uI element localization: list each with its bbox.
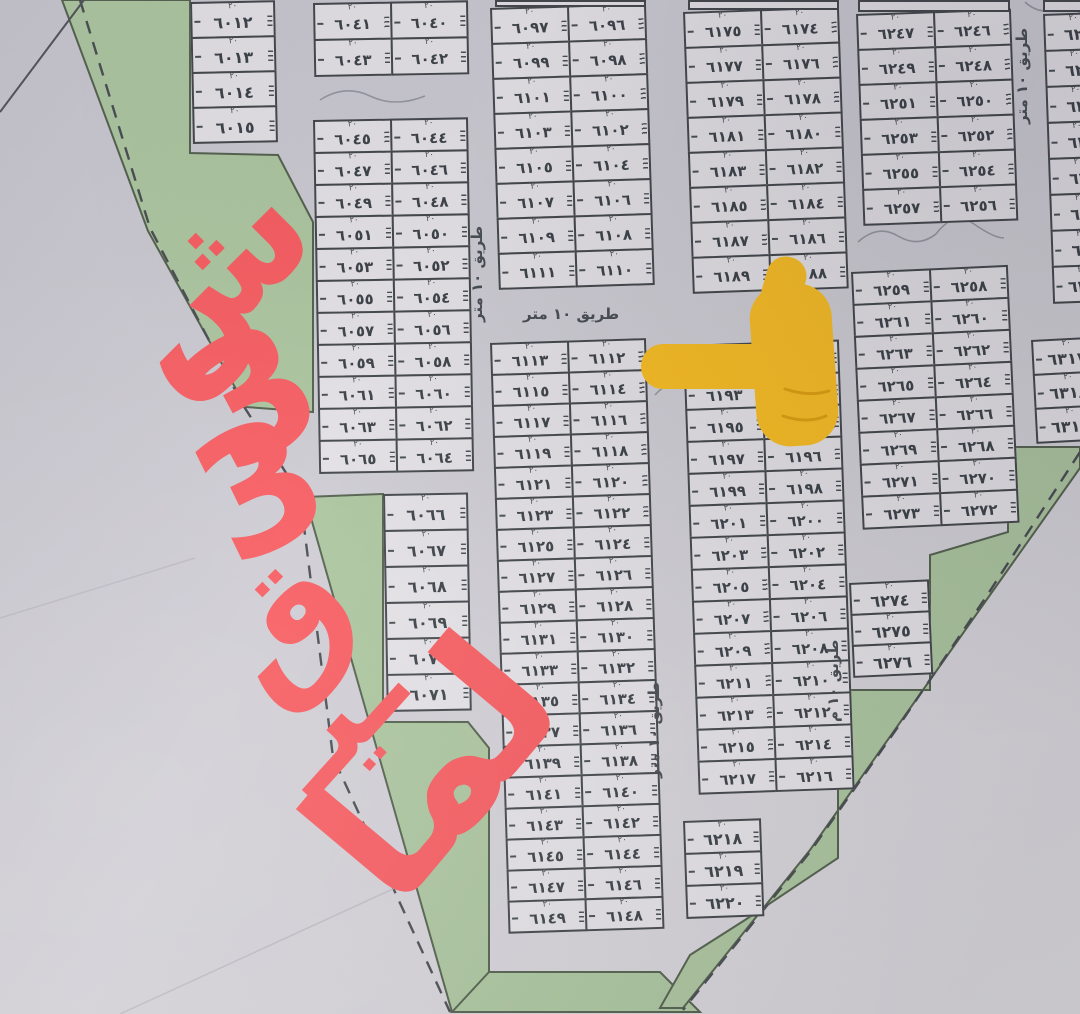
plot-row: ٢٠٦٠٦١٢٠٦٠٦٠ [317,373,473,410]
plot-cell: ٢٠٦٢٥٤ [937,149,1017,189]
plot-cell: ٢٠٦٣١ [1052,264,1080,304]
plot-number: ٦١١٨ [591,442,628,461]
plot-dimension-label: ٢٠ [893,83,902,92]
plot-dimension-label: ٢٠ [1076,230,1080,239]
plot-dimension-label: ٢٠ [720,81,729,90]
plot-cell: ٢٠٦١٤٥ [506,836,586,871]
plot-cell: ٢٠٦٢٠٣ [690,534,770,571]
plot-dimension-label: ٢٠ [799,114,808,123]
plot-dimension-label: ٢٠ [726,568,735,577]
plot-dimension-label: ٢٠ [425,38,434,47]
plot-dimension-label: ٢٠ [896,495,906,504]
plot-dimension-label: ٢٠ [605,110,614,119]
plot-row: ٢٠٦٠٤٩٢٠٦٠٤٨ [314,181,470,218]
plot-cell: ٢٠٦٠٦٨ [384,565,470,604]
plot-number: ٦١٤٦ [605,876,642,895]
plot-dimension-label: ٢٠ [968,46,977,55]
plot-dimension-label: ٢٠ [609,557,618,566]
plot-number: ٦٠٦٠ [415,384,452,403]
plot-dimension-label: ٢٠ [610,250,619,259]
plot-dimension-label: ٢٠ [533,590,542,599]
plot-number: ٦٢٠٦ [790,607,827,626]
plot-cell: ٢٠٦٢١٦ [774,755,854,792]
plot-dimension-label: ٢٠ [541,869,550,878]
plot-cell: ٢٠٦١٧٧ [684,44,764,84]
plot-cell: ٢٠٦٠٤٩ [314,183,393,218]
plot-cell: ٢٠٦٠٤٣ [314,38,393,77]
plot-row: ٢٠٦٢٧٦ [852,641,933,678]
plot-number: ٦٣ [1069,169,1080,189]
plot-cell: ٢٠٦١٠٥ [494,145,574,184]
plot-dimension-label: ٢٠ [428,343,437,352]
plot-number: ٦١٨٦ [789,229,826,248]
plot-number: ٦٢٥٨ [950,276,987,296]
plot-dimension-label: ٢٠ [426,215,435,224]
street-label-text: طريق ١٠ متر [645,682,663,778]
plot-dimension-label: ٢٠ [228,2,237,11]
plot-number: ٦٢٧١ [882,472,919,492]
plot-cell: ٢٠٦٠٦٤ [395,437,474,472]
plot-number: ٦٢١٧ [719,769,756,788]
plot-dimension-label: ٢٠ [884,582,894,591]
plot-dimension-label: ٢٠ [350,248,359,257]
plot-cell-partial [495,0,646,7]
plot-number: ٦٢٥٩ [873,280,910,300]
plot-number: ٦٠٤٥ [334,129,371,148]
plot-number: ٦٢٦٢ [953,340,990,360]
plot-cell: ٢٠٦١٠٩ [497,215,577,254]
plot-dimension-label: ٢٠ [888,303,898,312]
plot-cell: ٢٠٦٢٠٧ [692,598,772,635]
plot-number: ٦٠٤٦ [411,160,448,179]
plot-dimension-label: ٢٠ [894,118,903,127]
plot-cell: ٢٠٦٢٠٢ [767,531,847,568]
plot-row: ٢٠٦٣١٨ [1033,370,1080,410]
plot-number: ٦٠٤٨ [412,192,449,211]
plot-number: ٦٠٥٩ [338,353,375,372]
plot-dimension-label: ٢٠ [971,427,981,436]
plot-cell: ٢٠٦١٤٧ [507,867,587,902]
plot-number: ٦٣١ [1068,276,1080,296]
plot-cell: ٢٠٦٢١٨ [683,818,762,855]
plot-number: ٦٠٩٦ [589,16,626,35]
plot-number: ٦٣١٩ [1051,416,1080,437]
plot-dimension-label: ٢٠ [533,252,542,261]
plot-dimension-label: ٢٠ [607,495,616,504]
plot-dimension-label: ٢٠ [725,536,734,545]
plot-number: ٦١٢٧ [518,568,555,587]
plot-cell: ٢٠٦١٨٧ [690,219,770,259]
plot-number: ٦٢٦١ [874,312,911,332]
plot-row: ٢٠٦٣١ [1052,264,1080,304]
plot-number: ٦١٧٩ [707,92,744,111]
pointing-finger-icon [633,256,840,452]
plot-number: ٦٠٦٣ [339,417,376,436]
plot-dimension-label: ٢٠ [886,271,896,280]
plot-cell: ٢٠٦٢٥٥ [861,151,941,191]
plot-dimension-label: ٢٠ [724,504,733,513]
plot-dimension-label: ٢٠ [809,758,818,767]
plot-number: ٦١٤٩ [529,909,566,928]
plot-dimension-label: ٢٠ [425,151,434,160]
plot-dimension-label: ٢٠ [731,728,740,737]
plot-cell: ٢٠٦٢٠٥ [691,566,771,603]
plot-dimension-label: ٢٠ [609,215,618,224]
plot-dimension-label: ٢٠ [426,247,435,256]
plot-row: ٢٠٦٠٥١٢٠٦٠٥٠ [315,213,471,250]
plot-number: ٦١٧٤ [782,19,819,38]
plot-number: ٦١٩٨ [786,479,823,498]
plot-cell: ٢٠٦٢١٤ [773,723,853,760]
plot-dimension-label: ٢٠ [887,644,897,653]
plot-number: ٦٢٧٦ [873,652,913,673]
plot-number: ٦٢٥٤ [959,161,996,180]
plot-number: ٦١٨١ [708,127,745,146]
plot-row: ٢٠٦٢١٩ [684,850,763,887]
plot-number: ٦٣١٨ [1049,382,1080,403]
plot-dimension-label: ٢٠ [727,600,736,609]
plot-number: ٦٠٩٩ [513,53,550,72]
street-label-text: طريق ١٠ متر [1013,28,1031,124]
plot-number: ٦١٠٩ [518,228,555,247]
plot-number: ٦٢٧٣ [883,504,920,524]
plot-dimension-label: ٢٠ [615,743,624,752]
plot-number: ٦٢٥٧ [883,199,920,218]
plot-cell: ٢٠٦١٢١ [494,464,574,499]
plot-dimension-label: ٢٠ [799,470,808,479]
plot-cell: ٢٠٦٢٧٢ [939,489,1020,527]
plot-row: ٢٠٦٠١٢ [190,0,276,39]
plot-row: ٢٠٦٣١٧ [1031,336,1080,376]
plot-row: ٢٠٦٢٧٣٢٠٦٢٧٢ [861,489,1019,530]
plot-number: ٦١٨٢ [786,159,823,178]
plot-number: ٦٢١٥ [718,737,755,756]
plot-cell: ٢٠٦٠٤٧ [314,151,393,186]
plot-cell: ٢٠٦١٢٣ [495,495,575,530]
plot-number: ٦١٣٨ [601,752,638,771]
plot-number: ٦٢٦٨ [958,436,995,456]
plot-cell: ٢٠٦١٨٦ [767,216,847,256]
plot-number: ٦١٠٦ [594,191,631,210]
plot-number: ٦٢١٤ [795,735,832,754]
plot-number: ٦٢٠٢ [788,543,825,562]
plot-dimension-label: ٢٠ [353,408,362,417]
plot-row: ٢٠٦٠٦٨ [384,565,470,604]
plot-dimension-label: ٢٠ [525,8,534,17]
plot-row: ٢٠٦٢٢٠ [685,882,764,919]
plot-block-I: ٢٠٦٢٥٩٢٠٦٢٥٨٢٠٦٢٦١٢٠٦٢٦٠٢٠٦٢٦٣٢٠٦٢٦٢٢٠٦٢… [851,265,1020,530]
plot-cell: ٢٠٦٠١٢ [190,0,276,39]
plot-dimension-label: ٢٠ [1072,122,1080,131]
plot-cell: ٢٠٦٢٤٨ [934,44,1014,84]
plot-number: ٦١٢٢ [593,504,630,523]
plot-dimension-label: ٢٠ [525,343,534,352]
plot-cell: ٢٠٦٣ [1048,156,1080,196]
plot-cell: ٢٠٦٠٥٦ [393,309,472,344]
plot-dimension-label: ٢٠ [803,566,812,575]
plot-cell: ٢٠٦٢٧٦ [852,641,933,678]
plot-dimension-label: ٢٠ [802,219,811,228]
plot-dimension-label: ٢٠ [527,405,536,414]
plot-cell: ٢٠٦١٧٨ [762,77,842,117]
plot-cell: ٢٠٦١٢٤ [573,524,653,559]
plot-cell: ٢٠٦٠١٣ [191,35,277,74]
plot-dimension-label: ٢٠ [530,498,539,507]
plot-number: ٦١٨٧ [712,232,749,251]
plot-dimension-label: ٢٠ [604,402,613,411]
plot-cell: ٢٠٦٠٤٤ [389,117,468,152]
plot-dimension-label: ٢٠ [800,149,809,158]
plot-row: ٢٠٦٠٦٧ [384,529,470,568]
plot-row: ٢٠٦١٤٩٢٠٦١٤٨ [508,896,665,934]
plot-number: ٦٢١١ [716,673,753,692]
plot-number: ٦٠٦٨ [407,577,446,597]
plot-dimension-label: ٢٠ [974,491,984,500]
plot-cell: ٢٠٦١٢٨ [575,586,655,621]
plot-cell: ٢٠٦١٢٦ [574,555,654,590]
plot-number: ٦١٠٣ [515,123,552,142]
plot-dimension-label: ٢٠ [730,696,739,705]
plot-dimension-label: ٢٠ [896,153,905,162]
plot-dimension-label: ٢٠ [723,151,732,160]
plot-number: ٦٠٩٨ [590,51,627,70]
plot-dimension-label: ٢٠ [612,650,621,659]
plot-cell: ٢٠٦١٠٣ [493,110,573,149]
plot-number: ٦٢٥١ [880,94,917,113]
plot-number: ٦٠٤٤ [411,128,448,147]
plot-dimension-label: ٢٠ [1070,50,1079,59]
plot-number: ٦٣ [1071,240,1080,260]
plot-cell: ٢٠٦٣ [1047,120,1080,160]
plot-dimension-label: ٢٠ [230,107,239,116]
plot-cell: ٢٠٦١٠٤ [571,143,651,182]
plot-number: ٦٣ [1066,97,1080,117]
plot-dimension-label: ٢٠ [802,534,811,543]
plot-dimension-label: ٢٠ [611,619,620,628]
plot-number: ٦٢٠٠ [787,511,824,530]
plot-dimension-label: ٢٠ [422,530,431,539]
plot-cell: ٢٠٦٢٠٤ [768,563,848,600]
plot-dimension-label: ٢٠ [606,145,615,154]
plot-number: ٦٠٦٢ [416,416,453,435]
plot-number: ٦٢٥٠ [956,91,993,110]
plot-row: ٢٠٦٠٥٩٢٠٦٠٥٨ [317,341,473,378]
plot-number: ٦١١٧ [513,413,550,432]
plot-number: ٦٠٦٤ [416,448,453,467]
plot-number: ٦٢ [1064,25,1080,45]
plot-number: ٦٢٠٧ [713,609,750,628]
plot-dimension-label: ٢٠ [891,13,900,22]
plot-number: ٦١٢٨ [596,597,633,616]
plot-cell: ٢٠٦٠٩٦ [567,3,647,42]
plot-number: ٦٢٥٣ [881,129,918,148]
plot-cell: ٢٠٦١٩٨ [764,467,844,504]
plot-cell: ٢٠٦١٧٩ [685,79,765,119]
plot-cell: ٢٠٦٠١٤ [191,70,277,109]
plot-number: ٦١٧٧ [706,57,743,76]
plot-dimension-label: ٢٠ [1073,158,1080,167]
plot-dimension-label: ٢٠ [530,183,539,192]
plot-blocks-layer: ٢٠٦٠١٢٢٠٦٠١٣٢٠٦٠١٤٢٠٦٠١٥٢٠٦٠٤١٢٠٦٠٤٠٢٠٦٠… [0,0,1080,1014]
plot-number: ٦١٢٥ [517,537,554,556]
plot-cell: ٢٠٦١٣١ [499,619,579,654]
plot-block-A: ٢٠٦٠١٢٢٠٦٠١٣٢٠٦٠١٤٢٠٦٠١٥ [190,0,278,144]
plot-row: ٢٠٦٢١٨ [683,818,762,855]
plot-number: ٦١٨٥ [711,197,748,216]
plot-block-J: ٢٠٦٢٢٠٦٢٢٠٦٣٢٠٦٣٢٠٦٣٢٠٦٣٢٠٦٣٢٠٦٣١ [1043,12,1080,304]
plot-cell: ٢٠٦٠٩٧ [490,6,570,45]
plot-dimension-label: ٢٠ [722,116,731,125]
plot-number: ٦٣ [1070,204,1080,224]
plot-cell: ٢٠٦١٤٤ [583,834,663,869]
plot-dimension-label: ٢٠ [351,312,360,321]
plot-row: ٢٠٦٢ [1044,48,1080,88]
plot-number: ٦٣١٧ [1047,348,1080,369]
plot-cell: ٢٠٦٢٤٦ [932,9,1012,49]
plot-dimension-label: ٢٠ [427,279,436,288]
plot-cell: ٢٠٦٢١٣ [695,694,775,731]
plot-cell: ٢٠٦٢٥١ [858,81,938,121]
plot-dimension-label: ٢٠ [614,712,623,721]
plot-number: ٦٢٠٤ [789,575,826,594]
plot-dimension-label: ٢٠ [1065,407,1075,416]
plot-number: ٦١٧٦ [783,54,820,73]
plot-number: ٦٢٦٣ [876,344,913,364]
plot-number: ٦٠٥٦ [414,320,451,339]
plot-number: ٦٢٤٧ [877,24,914,43]
plot-number: ٦٢٦٩ [880,440,917,460]
plot-number: ٦٠٥٥ [337,289,374,308]
plot-number: ٦٢٦٥ [877,376,914,396]
plot-number: ٦٠٥٨ [415,352,452,371]
plot-dimension-label: ٢٠ [421,494,430,503]
plot-dimension-label: ٢٠ [973,186,982,195]
plot-number: ٦١٤٨ [606,906,643,925]
plot-dimension-label: ٢٠ [892,399,902,408]
plot-dimension-label: ٢٠ [617,805,626,814]
plot-row: ٢٠٦٠٤٣٢٠٦٠٤٢ [314,36,470,77]
plot-cell: ٢٠٦٢ [1044,48,1080,88]
plot-cell: ٢٠٦١٨٥ [689,184,769,224]
plot-dimension-label: ٢٠ [619,898,628,907]
plot-cell-partial [688,0,839,10]
plot-number: ٦٢١٨ [703,829,743,849]
plot-number: ٦٠٥٢ [413,256,450,275]
plot-dimension-label: ٢٠ [886,613,896,622]
plot-dimension-label: ٢٠ [968,363,978,372]
plot-number: ٦١٤٥ [527,847,564,866]
plot-cell: ٢٠٦١٠١ [492,75,572,114]
plot-dimension-label: ٢٠ [720,884,729,893]
plot-cell: ٢٠٦٢٠٠ [766,499,846,536]
plot-cell: ٢٠٦٢٥٣ [860,116,940,156]
plot-number: ٦٠١٥ [215,117,254,137]
plot-dimension-label: ٢٠ [424,119,433,128]
plot-cell: ٢٠٦٠٦١ [317,375,396,410]
plot-dimension-label: ٢٠ [532,218,541,227]
plot-cell: ٢٠٦١٧٦ [761,42,841,82]
plot-dimension-label: ٢٠ [349,184,358,193]
plot-cell: ٢٠٦٣١٩ [1035,404,1080,444]
plot-number: ٦٢٠١ [710,513,747,532]
plot-row: ٢٠٦٠٤١٢٠٦٠٤٠ [313,0,469,41]
plot-number: ٦١٠٨ [595,226,632,245]
plot-dimension-label: ٢٠ [1068,14,1077,23]
plot-dimension-label: ٢٠ [229,37,238,46]
plot-dimension-label: ٢٠ [531,529,540,538]
plot-block-G2: ٢٠٦٢١٨٢٠٦٢١٩٢٠٦٢٢٠ [683,818,764,919]
plot-dimension-label: ٢٠ [718,11,727,20]
plot-dimension-label: ٢٠ [804,598,813,607]
plot-cell: ٢٠٦٠١٥ [192,105,278,144]
plot-dimension-label: ٢٠ [604,75,613,84]
plot-dimension-label: ٢٠ [717,820,726,829]
plot-number: ٦٣ [1067,133,1080,153]
plot-cell: ٢٠٦١٢٩ [498,588,578,623]
plot-number: ٦٠٥٠ [412,224,449,243]
plot-number: ٦٢٧٥ [871,621,911,642]
plot-row: ٢٠٦٣ [1047,120,1080,160]
plot-dimension-label: ٢٠ [534,621,543,630]
plot-cell: ٢٠٦٠٦٦ [383,493,469,532]
street-label-10m-horizontal: طريق ١٠ متر [523,305,619,323]
plot-number: ٦١٧٥ [705,22,742,41]
plot-number: ٦٠٥٧ [337,321,374,340]
plot-dimension-label: ٢٠ [608,526,617,535]
plot-dimension-label: ٢٠ [897,188,906,197]
plot-dimension-label: ٢٠ [801,184,810,193]
plot-number: ٦١٤٢ [603,814,640,833]
plot-cell: ٢٠٦١٩٩ [687,470,767,507]
plot-dimension-label: ٢٠ [808,726,817,735]
plot-number: ٦١١٠ [596,261,633,280]
plot-row: ٢٠٦٢٥٧٢٠٦٢٥٦ [862,183,1018,225]
plot-number: ٦١٠٧ [517,193,554,212]
plot-cell: ٢٠٦٠٥٢ [392,245,471,280]
plot-number: ٦٢٦٦ [956,404,993,424]
plot-cell: ٢٠٦١٢٧ [497,557,577,592]
plot-dimension-label: ٢٠ [529,467,538,476]
plot-dimension-label: ٢٠ [229,72,238,81]
plot-cell: ٢٠٦٠٥٨ [393,341,472,376]
plot-number: ٦١٣٤ [599,690,636,709]
plot-cell: ٢٠٦١٣٠ [576,617,656,652]
plot-dimension-label: ٢٠ [796,44,805,53]
plot-block-H: ٢٠٦٢٤٧٢٠٦٢٤٦٢٠٦٢٤٩٢٠٦٢٤٨٢٠٦٢٥١٢٠٦٢٥٠٢٠٦٢… [856,9,1018,226]
plot-number: ٦٢٧٠ [959,468,996,488]
plot-number: ٦٢٠٩ [715,641,752,660]
street-label-text: طريق ١٠ م [824,640,842,722]
plot-number: ٦١١٦ [590,411,627,430]
plot-cell: ٢٠٦٣١٧ [1031,336,1080,376]
plot-number: ٦٢٤٩ [879,59,916,78]
plot-dimension-label: ٢٠ [722,472,731,481]
plot-cell: ٢٠٦٢٤٧ [856,11,936,51]
plot-cell: ٢٠٦٢٢٠ [685,882,764,919]
plot-number: ٦٢٧٤ [870,590,910,611]
plot-dimension-label: ٢٠ [348,39,357,48]
plot-dimension-label: ٢٠ [535,652,544,661]
plot-dimension-label: ٢٠ [732,760,741,769]
plot-number: ٦٠١٤ [215,82,254,102]
plot-dimension-label: ٢٠ [424,2,433,11]
plot-row: ٢٠٦٣١٩ [1035,404,1080,444]
plot-dimension-label: ٢٠ [724,186,733,195]
plot-row: ٢٠٦٠١٣ [191,35,277,74]
plot-cell-partial [858,0,1010,12]
plot-cell: ٢٠٦٢٧٣ [861,492,942,530]
plot-cell: ٢٠٦٠٦٢ [395,405,474,440]
